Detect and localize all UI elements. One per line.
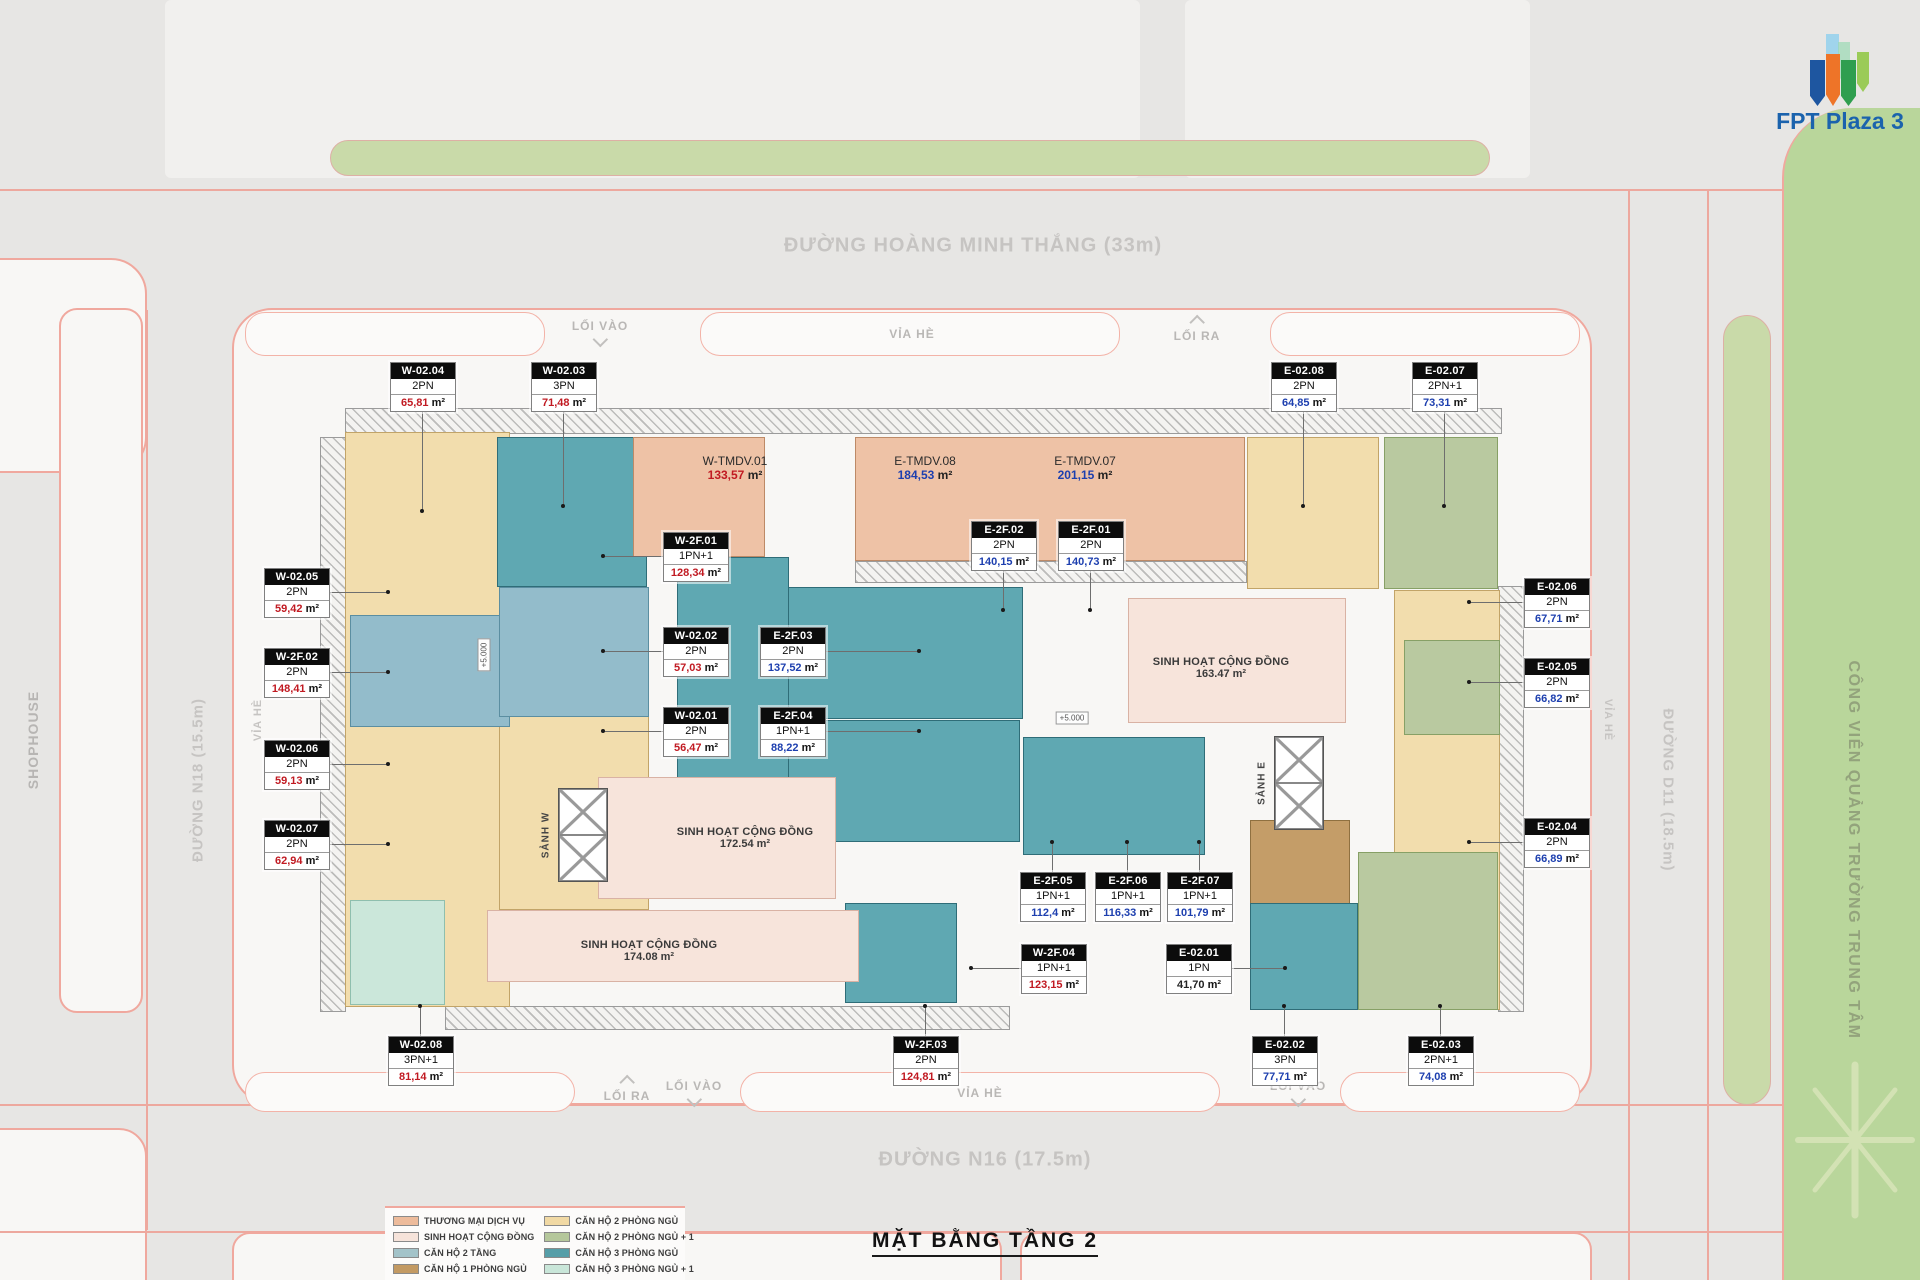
unit-area: 57,03 m² bbox=[664, 660, 728, 676]
level-marker: +5.000 bbox=[1056, 712, 1089, 725]
unit-type: 2PN bbox=[265, 837, 329, 853]
unit-code: E-2F.04 bbox=[761, 708, 825, 724]
leader-line bbox=[925, 1006, 926, 1036]
leader-line bbox=[1230, 968, 1285, 969]
unit-label-E-02.07: E-02.07 2PN+1 73,31 m² bbox=[1412, 362, 1478, 412]
legend-swatch bbox=[544, 1248, 570, 1258]
unit-label-W-02.08: W-02.08 3PN+1 81,14 m² bbox=[388, 1036, 454, 1086]
unit-area-patch-teal bbox=[677, 557, 789, 807]
exit-label: LỐI RA bbox=[604, 1089, 651, 1103]
stair-icon bbox=[1275, 783, 1323, 829]
legend-item: CĂN HỘ 2 TẦNG bbox=[393, 1246, 534, 1260]
unit-area: 66,82 m² bbox=[1525, 691, 1589, 707]
unit-label-W-02.06: W-02.06 2PN 59,13 m² bbox=[264, 740, 330, 790]
unit-type: 2PN+1 bbox=[1409, 1053, 1473, 1069]
leader-line bbox=[563, 411, 564, 506]
sidewalk-block bbox=[1270, 312, 1580, 356]
unit-label-W-02.01: W-02.01 2PN 56,47 m² bbox=[663, 707, 729, 757]
unit-label-E-02.01: E-02.01 1PN 41,70 m² bbox=[1166, 944, 1232, 994]
shophouse-block bbox=[59, 308, 143, 1013]
unit-type: 2PN bbox=[664, 724, 728, 740]
road-label-top: ĐƯỜNG HOÀNG MINH THẮNG (33m) bbox=[784, 235, 1162, 258]
lobby-west-label: SẢNH W bbox=[541, 812, 552, 859]
unit-type: 2PN bbox=[1525, 835, 1589, 851]
unit-label-E-02.06: E-02.06 2PN 67,71 m² bbox=[1524, 578, 1590, 628]
curb-line bbox=[1707, 190, 1709, 1280]
legend-item: THƯƠNG MẠI DỊCH VỤ bbox=[393, 1214, 534, 1228]
commercial-unit-area: 201,15 m² bbox=[1054, 468, 1116, 482]
unit-area-patch-blue2f bbox=[499, 587, 649, 717]
community-area-label: SINH HOẠT CỘNG ĐỒNG 163.47 m² bbox=[1153, 656, 1289, 680]
unit-type: 1PN+1 bbox=[1096, 889, 1160, 905]
road-label-right: ĐƯỜNG D11 (18.5m) bbox=[1660, 708, 1677, 871]
road-label-left: ĐƯỜNG N18 (15.5m) bbox=[190, 698, 207, 862]
unit-code: W-02.02 bbox=[664, 628, 728, 644]
leader-line bbox=[1052, 842, 1053, 872]
leader-line bbox=[1127, 842, 1128, 872]
unit-code: E-02.01 bbox=[1167, 945, 1231, 961]
unit-area: 123,15 m² bbox=[1022, 977, 1086, 993]
leader-line bbox=[603, 651, 663, 652]
legend-swatch bbox=[544, 1216, 570, 1226]
unit-code: W-02.04 bbox=[391, 363, 455, 379]
legend-item: CĂN HỘ 3 PHÒNG NGỦ + 1 bbox=[544, 1262, 693, 1276]
commercial-unit-code: E-TMDV.08 bbox=[894, 454, 956, 468]
logo-bar bbox=[1810, 60, 1825, 106]
commercial-unit-area: 184,53 m² bbox=[894, 468, 956, 482]
leader-dot bbox=[1438, 1004, 1442, 1008]
leader-dot bbox=[1282, 1004, 1286, 1008]
unit-label-E-02.08: E-02.08 2PN 64,85 m² bbox=[1271, 362, 1337, 412]
unit-area: 148,41 m² bbox=[265, 681, 329, 697]
leader-dot bbox=[1197, 840, 1201, 844]
chevron-down-icon bbox=[1290, 1092, 1306, 1108]
unit-area: 64,85 m² bbox=[1272, 395, 1336, 411]
unit-area: 65,81 m² bbox=[391, 395, 455, 411]
unit-area: 140,15 m² bbox=[972, 554, 1036, 570]
stair-icon bbox=[1275, 737, 1323, 783]
unit-code: W-02.05 bbox=[265, 569, 329, 585]
unit-code: E-02.08 bbox=[1272, 363, 1336, 379]
unit-label-E-2F.07: E-2F.07 1PN+1 101,79 m² bbox=[1167, 872, 1233, 922]
unit-area: 41,70 m² bbox=[1167, 977, 1231, 993]
elevator-core-west bbox=[558, 788, 608, 882]
unit-code: W-2F.03 bbox=[894, 1037, 958, 1053]
unit-code: W-2F.01 bbox=[664, 533, 728, 549]
unit-code: E-02.07 bbox=[1413, 363, 1477, 379]
legend-swatch bbox=[393, 1232, 419, 1242]
unit-type: 2PN bbox=[265, 665, 329, 681]
unit-code: E-02.02 bbox=[1253, 1037, 1317, 1053]
leader-line bbox=[420, 1006, 421, 1036]
unit-type: 2PN bbox=[1059, 538, 1123, 554]
leader-line bbox=[971, 968, 1021, 969]
unit-area: 116,33 m² bbox=[1096, 905, 1160, 921]
entry-marker: LỐI VÀO bbox=[572, 319, 628, 345]
commercial-unit-code: E-TMDV.07 bbox=[1054, 454, 1116, 468]
unit-code: W-2F.02 bbox=[265, 649, 329, 665]
legend-item: CĂN HỘ 3 PHÒNG NGỦ bbox=[544, 1246, 693, 1260]
leader-dot bbox=[1088, 608, 1092, 612]
leader-line bbox=[1469, 602, 1524, 603]
legend-label: CĂN HỘ 2 TẦNG bbox=[424, 1248, 496, 1258]
logo-bar bbox=[1857, 52, 1869, 92]
unit-area: 112,4 m² bbox=[1021, 905, 1085, 921]
leader-dot bbox=[418, 1004, 422, 1008]
unit-type: 2PN+1 bbox=[1413, 379, 1477, 395]
unit-area-patch-sage bbox=[1358, 852, 1498, 1010]
leader-dot bbox=[917, 729, 921, 733]
leader-dot bbox=[386, 842, 390, 846]
unit-area: 73,31 m² bbox=[1413, 395, 1477, 411]
curb-line bbox=[0, 189, 1920, 191]
legend: THƯƠNG MẠI DỊCH VỤ SINH HOẠT CỘNG ĐỒNG C… bbox=[385, 1206, 685, 1280]
unit-code: E-2F.01 bbox=[1059, 522, 1123, 538]
leader-line bbox=[1090, 570, 1091, 610]
leader-line bbox=[1469, 842, 1524, 843]
leader-dot bbox=[1283, 966, 1287, 970]
sidewalk-label-right: VỈA HÈ bbox=[1602, 699, 1614, 741]
unit-area: 101,79 m² bbox=[1168, 905, 1232, 921]
unit-code: E-2F.05 bbox=[1021, 873, 1085, 889]
leader-line bbox=[328, 592, 388, 593]
legend-swatch bbox=[393, 1248, 419, 1258]
city-block bbox=[0, 1128, 147, 1280]
commercial-unit-label: E-TMDV.08 184,53 m² bbox=[894, 454, 956, 482]
unit-code: E-2F.06 bbox=[1096, 873, 1160, 889]
unit-label-W-2F.02: W-2F.02 2PN 148,41 m² bbox=[264, 648, 330, 698]
leader-dot bbox=[601, 649, 605, 653]
stair-icon bbox=[559, 835, 607, 881]
legend-column-left: THƯƠNG MẠI DỊCH VỤ SINH HOẠT CỘNG ĐỒNG C… bbox=[393, 1214, 534, 1276]
unit-label-E-2F.03: E-2F.03 2PN 137,52 m² bbox=[760, 627, 826, 677]
leader-dot bbox=[1467, 840, 1471, 844]
unit-label-W-02.02: W-02.02 2PN 57,03 m² bbox=[663, 627, 729, 677]
commercial-unit-label: W-TMDV.01 133,57 m² bbox=[703, 454, 768, 482]
leader-line bbox=[422, 411, 423, 511]
unit-type: 2PN bbox=[265, 757, 329, 773]
logo-bar bbox=[1826, 54, 1840, 106]
unit-label-E-02.05: E-02.05 2PN 66,82 m² bbox=[1524, 658, 1590, 708]
unit-label-E-02.04: E-02.04 2PN 66,89 m² bbox=[1524, 818, 1590, 868]
leader-line bbox=[1469, 682, 1524, 683]
unit-code: E-02.04 bbox=[1525, 819, 1589, 835]
lobby-east-label: SẢNH E bbox=[1257, 761, 1268, 805]
balcony-hatch bbox=[855, 561, 1247, 583]
unit-type: 1PN+1 bbox=[664, 549, 728, 565]
legend-label: CĂN HỘ 3 PHÒNG NGỦ bbox=[575, 1248, 678, 1258]
unit-code: W-2F.04 bbox=[1022, 945, 1086, 961]
leader-line bbox=[1003, 570, 1004, 610]
logo-text: FPT Plaza 3 bbox=[1755, 108, 1920, 135]
shophouse-label: SHOPHOUSE bbox=[25, 691, 41, 789]
unit-area: 66,89 m² bbox=[1525, 851, 1589, 867]
community-area-label: SINH HOẠT CỘNG ĐỒNG 174.08 m² bbox=[581, 939, 717, 963]
unit-area: 71,48 m² bbox=[532, 395, 596, 411]
unit-area: 88,22 m² bbox=[761, 740, 825, 756]
unit-area-patch-yellow bbox=[1247, 437, 1379, 589]
legend-label: CĂN HỘ 2 PHÒNG NGỦ bbox=[575, 1216, 678, 1226]
project-logo: FPT Plaza 3 bbox=[1755, 34, 1920, 135]
leader-dot bbox=[601, 729, 605, 733]
leader-dot bbox=[1125, 840, 1129, 844]
unit-area: 124,81 m² bbox=[894, 1069, 958, 1085]
chevron-up-icon bbox=[1189, 315, 1205, 331]
legend-label: CĂN HỘ 2 PHÒNG NGỦ + 1 bbox=[575, 1232, 693, 1242]
unit-label-E-2F.06: E-2F.06 1PN+1 116,33 m² bbox=[1095, 872, 1161, 922]
unit-type: 3PN bbox=[1253, 1053, 1317, 1069]
chevron-down-icon bbox=[592, 332, 608, 348]
curb-line bbox=[1628, 190, 1630, 1280]
green-median bbox=[330, 140, 1490, 176]
legend-item: SINH HOẠT CỘNG ĐỒNG bbox=[393, 1230, 534, 1244]
sidewalk-label: VỈA HÈ bbox=[957, 1086, 1003, 1100]
legend-label: SINH HOẠT CỘNG ĐỒNG bbox=[424, 1232, 534, 1242]
unit-label-E-2F.02: E-2F.02 2PN 140,15 m² bbox=[971, 521, 1037, 571]
leader-line bbox=[603, 731, 663, 732]
unit-area: 74,08 m² bbox=[1409, 1069, 1473, 1085]
sidewalk-label: VỈA HÈ bbox=[889, 327, 935, 341]
sidewalk-block bbox=[245, 312, 545, 356]
unit-label-W-02.07: W-02.07 2PN 62,94 m² bbox=[264, 820, 330, 870]
leader-line bbox=[1444, 411, 1445, 506]
unit-area: 59,42 m² bbox=[265, 601, 329, 617]
unit-code: E-2F.07 bbox=[1168, 873, 1232, 889]
legend-swatch bbox=[544, 1264, 570, 1274]
leader-dot bbox=[420, 509, 424, 513]
unit-type: 1PN bbox=[1167, 961, 1231, 977]
leader-line bbox=[1303, 411, 1304, 506]
unit-code: E-02.06 bbox=[1525, 579, 1589, 595]
unit-type: 2PN bbox=[1525, 675, 1589, 691]
unit-code: E-02.03 bbox=[1409, 1037, 1473, 1053]
balcony-hatch bbox=[1498, 586, 1524, 1012]
unit-area-patch-sage bbox=[1384, 437, 1498, 589]
unit-code: E-2F.02 bbox=[972, 522, 1036, 538]
leader-dot bbox=[1050, 840, 1054, 844]
unit-code: W-02.06 bbox=[265, 741, 329, 757]
commercial-unit-label: E-TMDV.07 201,15 m² bbox=[1054, 454, 1116, 482]
unit-type: 2PN bbox=[1525, 595, 1589, 611]
legend-label: THƯƠNG MẠI DỊCH VỤ bbox=[424, 1216, 525, 1226]
unit-code: W-02.07 bbox=[265, 821, 329, 837]
leader-line bbox=[1199, 842, 1200, 872]
stair-icon bbox=[559, 789, 607, 835]
unit-type: 1PN+1 bbox=[1168, 889, 1232, 905]
fpt-plaza-building-icon bbox=[1800, 34, 1880, 106]
unit-type: 2PN bbox=[894, 1053, 958, 1069]
unit-area: 81,14 m² bbox=[389, 1069, 453, 1085]
unit-area: 56,47 m² bbox=[664, 740, 728, 756]
unit-type: 2PN bbox=[391, 379, 455, 395]
leader-line bbox=[328, 764, 388, 765]
leader-dot bbox=[386, 590, 390, 594]
leader-line bbox=[328, 844, 388, 845]
leader-dot bbox=[601, 554, 605, 558]
unit-area: 128,34 m² bbox=[664, 565, 728, 581]
unit-label-W-2F.04: W-2F.04 1PN+1 123,15 m² bbox=[1021, 944, 1087, 994]
legend-label: CĂN HỘ 1 PHÒNG NGỦ bbox=[424, 1264, 527, 1274]
balcony-hatch bbox=[320, 437, 346, 1012]
legend-swatch bbox=[393, 1264, 419, 1274]
curb-line bbox=[146, 310, 148, 1230]
elevator-core-east bbox=[1274, 736, 1324, 830]
legend-item: CĂN HỘ 1 PHÒNG NGỦ bbox=[393, 1262, 534, 1276]
legend-swatch bbox=[393, 1216, 419, 1226]
unit-area-patch-teal bbox=[497, 437, 647, 587]
exit-label: LỐI RA bbox=[1174, 329, 1221, 343]
unit-type: 2PN bbox=[972, 538, 1036, 554]
leader-dot bbox=[923, 1004, 927, 1008]
leader-line bbox=[1440, 1006, 1441, 1036]
leader-dot bbox=[1442, 504, 1446, 508]
unit-code: E-02.05 bbox=[1525, 659, 1589, 675]
exit-marker-bottom: LỐI RA bbox=[604, 1077, 651, 1103]
entry-marker-bottom: LỐI VÀO bbox=[666, 1079, 722, 1105]
unit-type: 3PN bbox=[532, 379, 596, 395]
legend-item: CĂN HỘ 2 PHÒNG NGỦ + 1 bbox=[544, 1230, 693, 1244]
unit-type: 2PN bbox=[664, 644, 728, 660]
unit-area-patch-teal bbox=[1023, 737, 1205, 855]
leader-line bbox=[328, 672, 388, 673]
green-strip bbox=[1723, 315, 1771, 1105]
unit-area: 59,13 m² bbox=[265, 773, 329, 789]
community-area-label: SINH HOẠT CỘNG ĐỒNG 172.54 m² bbox=[677, 826, 813, 850]
unit-type: 2PN bbox=[761, 644, 825, 660]
leader-dot bbox=[386, 762, 390, 766]
unit-area-patch-teal bbox=[1250, 903, 1358, 1010]
leader-dot bbox=[917, 649, 921, 653]
unit-area: 137,52 m² bbox=[761, 660, 825, 676]
unit-label-W-02.03: W-02.03 3PN 71,48 m² bbox=[531, 362, 597, 412]
leader-dot bbox=[969, 966, 973, 970]
leader-dot bbox=[1467, 680, 1471, 684]
unit-label-E-2F.04: E-2F.04 1PN+1 88,22 m² bbox=[760, 707, 826, 757]
unit-type: 2PN bbox=[265, 585, 329, 601]
logo-bar bbox=[1841, 60, 1856, 106]
unit-label-E-02.02: E-02.02 3PN 77,71 m² bbox=[1252, 1036, 1318, 1086]
unit-code: W-02.08 bbox=[389, 1037, 453, 1053]
leader-line bbox=[1284, 1006, 1285, 1036]
unit-area: 140,73 m² bbox=[1059, 554, 1123, 570]
city-block bbox=[1020, 1232, 1592, 1280]
leader-line bbox=[824, 731, 919, 732]
leader-dot bbox=[386, 670, 390, 674]
unit-type: 1PN+1 bbox=[1022, 961, 1086, 977]
unit-label-E-02.03: E-02.03 2PN+1 74,08 m² bbox=[1408, 1036, 1474, 1086]
unit-label-W-02.05: W-02.05 2PN 59,42 m² bbox=[264, 568, 330, 618]
unit-area-patch-teal bbox=[845, 903, 957, 1003]
sidewalk-marker-bottom: VỈA HÈ bbox=[957, 1086, 1003, 1100]
unit-area: 62,94 m² bbox=[265, 853, 329, 869]
unit-code: W-02.03 bbox=[532, 363, 596, 379]
park-star-icon bbox=[1790, 1055, 1920, 1225]
unit-label-W-2F.01: W-2F.01 1PN+1 128,34 m² bbox=[663, 532, 729, 582]
sidewalk-marker: VỈA HÈ bbox=[889, 327, 935, 341]
road-label-bottom: ĐƯỜNG N16 (17.5m) bbox=[879, 1149, 1092, 1172]
page-title: MẶT BẰNG TẦNG 2 bbox=[872, 1229, 1098, 1257]
unit-label-W-2F.03: W-2F.03 2PN 124,81 m² bbox=[893, 1036, 959, 1086]
leader-dot bbox=[1301, 504, 1305, 508]
unit-label-E-2F.01: E-2F.01 2PN 140,73 m² bbox=[1058, 521, 1124, 571]
leader-line bbox=[603, 556, 663, 557]
commercial-unit-area: 133,57 m² bbox=[703, 468, 768, 482]
unit-code: W-02.01 bbox=[664, 708, 728, 724]
chevron-up-icon bbox=[619, 1075, 635, 1091]
chevron-down-icon bbox=[686, 1092, 702, 1108]
unit-area-patch-onebr bbox=[1250, 820, 1350, 905]
exit-marker: LỐI RA bbox=[1174, 317, 1221, 343]
unit-type: 2PN bbox=[1272, 379, 1336, 395]
commercial-unit-code: W-TMDV.01 bbox=[703, 454, 768, 468]
unit-area-patch-mint bbox=[350, 900, 445, 1005]
unit-type: 3PN+1 bbox=[389, 1053, 453, 1069]
unit-label-W-02.04: W-02.04 2PN 65,81 m² bbox=[390, 362, 456, 412]
unit-code: E-2F.03 bbox=[761, 628, 825, 644]
park-label: CÔNG VIÊN QUẢNG TRƯỜNG TRUNG TÂM bbox=[1844, 661, 1862, 1040]
site-plan-map: ĐƯỜNG HOÀNG MINH THẮNG (33m) ĐƯỜNG N16 (… bbox=[0, 0, 1920, 1280]
level-marker: +5.000 bbox=[478, 639, 491, 672]
sidewalk-label-left: VỈA HÈ bbox=[252, 699, 264, 741]
leader-dot bbox=[1467, 600, 1471, 604]
unit-label-E-2F.05: E-2F.05 1PN+1 112,4 m² bbox=[1020, 872, 1086, 922]
legend-item: CĂN HỘ 2 PHÒNG NGỦ bbox=[544, 1214, 693, 1228]
unit-type: 1PN+1 bbox=[761, 724, 825, 740]
legend-label: CĂN HỘ 3 PHÒNG NGỦ + 1 bbox=[575, 1264, 693, 1274]
legend-column-right: CĂN HỘ 2 PHÒNG NGỦ CĂN HỘ 2 PHÒNG NGỦ + … bbox=[544, 1214, 693, 1276]
leader-line bbox=[824, 651, 919, 652]
unit-area: 77,71 m² bbox=[1253, 1069, 1317, 1085]
unit-type: 1PN+1 bbox=[1021, 889, 1085, 905]
leader-dot bbox=[561, 504, 565, 508]
unit-area: 67,71 m² bbox=[1525, 611, 1589, 627]
leader-dot bbox=[1001, 608, 1005, 612]
unit-area-patch-sage bbox=[1404, 640, 1500, 735]
legend-swatch bbox=[544, 1232, 570, 1242]
